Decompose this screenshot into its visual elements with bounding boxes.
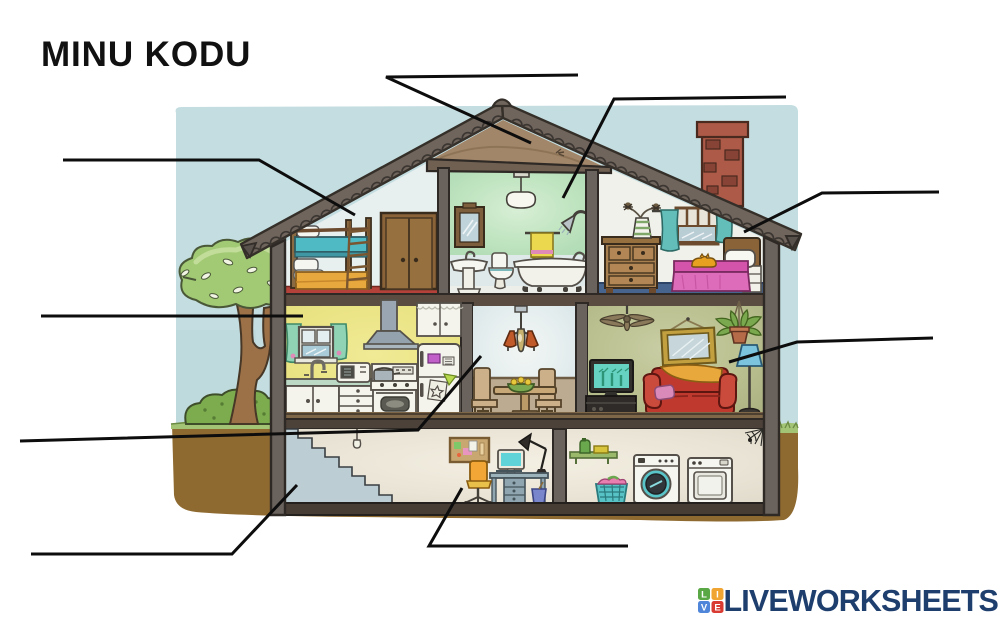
svg-text:E: E: [714, 603, 720, 614]
svg-text:V: V: [701, 603, 708, 614]
svg-text:LIVEWORKSHEETS: LIVEWORKSHEETS: [724, 584, 999, 618]
svg-text:L: L: [701, 590, 707, 601]
svg-text:I: I: [716, 590, 719, 601]
svg-text:MINU KODU: MINU KODU: [41, 35, 251, 74]
